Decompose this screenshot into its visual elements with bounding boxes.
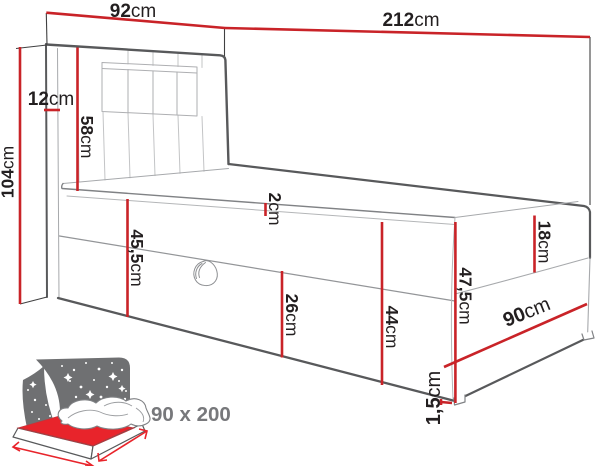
svg-text:18cm: 18cm (535, 221, 555, 264)
svg-text:1,5cm: 1,5cm (423, 371, 445, 425)
svg-text:58cm: 58cm (77, 116, 97, 159)
svg-text:45,5cm: 45,5cm (127, 229, 147, 286)
svg-text:104cm: 104cm (0, 146, 18, 199)
svg-text:12cm: 12cm (28, 89, 74, 110)
svg-text:2cm: 2cm (265, 192, 285, 225)
svg-text:212cm: 212cm (382, 10, 439, 31)
svg-text:90 x 200: 90 x 200 (151, 403, 231, 426)
svg-text:92cm: 92cm (110, 1, 156, 22)
svg-text:47,5cm: 47,5cm (456, 267, 476, 324)
svg-text:44cm: 44cm (382, 306, 402, 349)
svg-text:26cm: 26cm (282, 294, 302, 337)
